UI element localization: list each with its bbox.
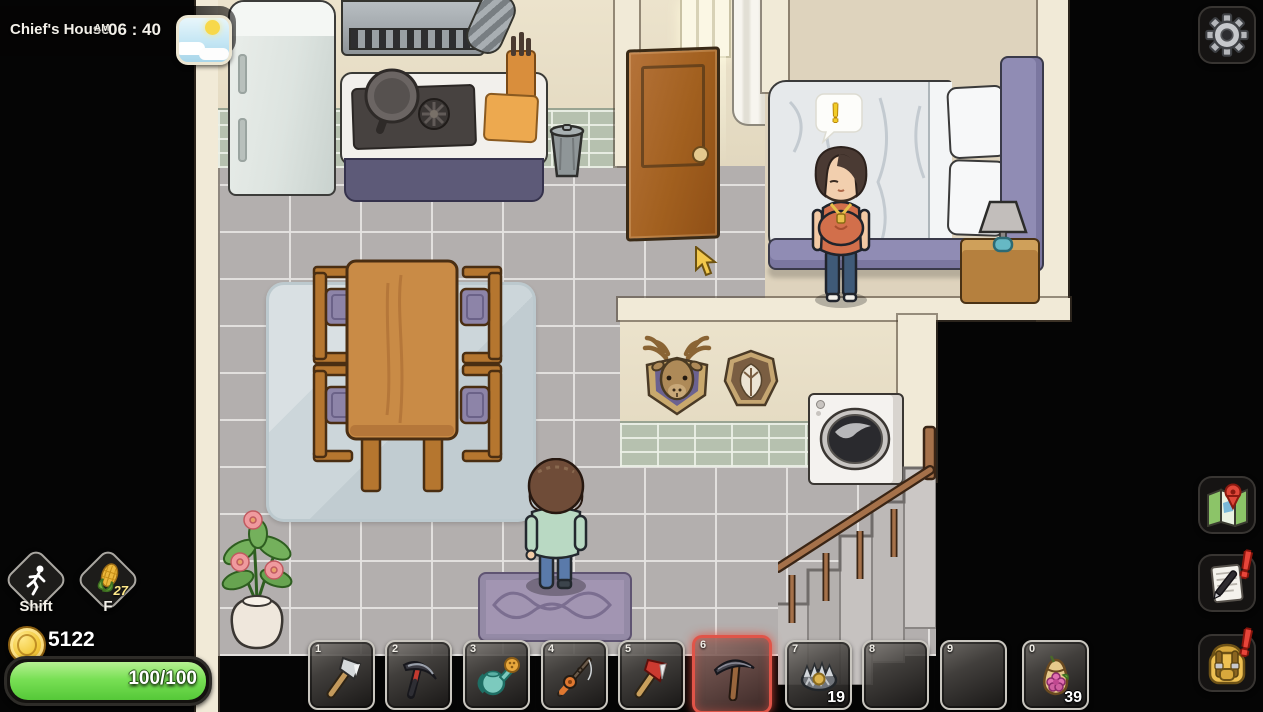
player-character [508, 458, 600, 600]
health-bar: 100/100 [4, 656, 212, 706]
counter-cabinet [344, 158, 544, 202]
map-button[interactable] [1198, 476, 1256, 534]
consume-key-label: F [76, 598, 140, 615]
hotbar-slot-1[interactable]: 1 [308, 640, 375, 710]
exclamation-icon: ! [831, 98, 840, 129]
deer-trophy [638, 334, 716, 416]
location-time-bar: Chief's House AM 06 : 40 [0, 6, 236, 56]
runner-icon [20, 564, 52, 596]
weather-icon [176, 15, 232, 65]
range-hood [341, 0, 485, 56]
slot-count: 39 [1064, 689, 1082, 707]
hotbar-slot-5[interactable]: 5 [618, 640, 685, 710]
hotbar-slot-9[interactable]: 9 [940, 640, 1007, 710]
health-value: 100/100 [128, 668, 197, 690]
sprint-key-label: Shift [4, 598, 68, 615]
trash-can [544, 120, 590, 180]
potted-plant [216, 508, 298, 658]
red-axe-icon [629, 653, 675, 699]
slot-key: 8 [869, 643, 875, 655]
house-left-wall [196, 0, 218, 712]
table-lamp [976, 198, 1030, 254]
map-icon [1204, 483, 1250, 527]
axe-icon [319, 653, 365, 699]
hotbar-slot-2[interactable]: 2 [385, 640, 452, 710]
slot-key: 6 [700, 639, 706, 651]
slot-key: 9 [947, 643, 953, 655]
npc-mother[interactable] [805, 138, 877, 310]
hotbar-slot-0[interactable]: 0 39 [1022, 640, 1089, 710]
cutting-board [483, 93, 539, 144]
dining-table-set [300, 253, 515, 523]
coin-amount: 5122 [48, 628, 95, 652]
gear-icon [1203, 11, 1251, 59]
burner [414, 96, 454, 132]
hotbar-slot-8[interactable]: 8 [862, 640, 929, 710]
door-knob [692, 146, 709, 164]
settings-button[interactable] [1198, 6, 1256, 64]
hotbar-slot-6-selected[interactable]: 6 [692, 635, 772, 712]
mouse-cursor [694, 246, 724, 280]
bedroom-entry-wall [762, 0, 788, 92]
fishing-rod-icon [552, 653, 598, 699]
watering-can-icon [474, 653, 520, 699]
time-label: 06 : 40 [108, 20, 161, 40]
wall-plaque [722, 348, 780, 410]
game-screen: ! [0, 0, 1263, 712]
pickaxe-icon [707, 651, 757, 701]
hotbar-slot-7[interactable]: 7 19 [785, 640, 852, 710]
bedroom-door[interactable] [626, 46, 720, 241]
scythe-icon [396, 653, 442, 699]
slot-count: 19 [827, 689, 845, 707]
pillow [946, 85, 1008, 160]
hotbar-slot-3[interactable]: 3 [463, 640, 530, 710]
corn-count: 27 [114, 583, 128, 598]
fridge [228, 0, 336, 196]
knife-block [506, 50, 536, 100]
hotbar-slot-4[interactable]: 4 [541, 640, 608, 710]
